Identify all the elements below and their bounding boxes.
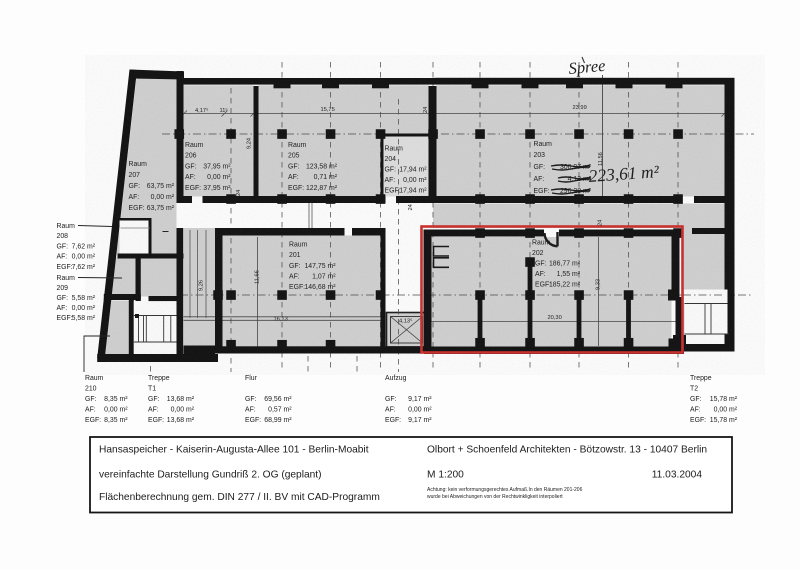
svg-text:Raum: Raum [57, 275, 76, 282]
svg-text:AF:: AF: [85, 407, 96, 414]
svg-text:EGF:: EGF: [85, 417, 101, 424]
svg-text:0,00 m²: 0,00 m² [104, 407, 128, 414]
svg-text:Achtung: kein verformungsgerec: Achtung: kein verformungsgerechtes Aufma… [427, 487, 583, 493]
svg-text:GF:: GF: [57, 244, 69, 251]
svg-text:Hansaspeicher - Kaiserin-Augus: Hansaspeicher - Kaiserin-Augusta-Allee 1… [99, 445, 369, 456]
svg-text:13,68 m²: 13,68 m² [167, 417, 195, 424]
svg-text:9,17 m²: 9,17 m² [408, 396, 432, 403]
svg-text:68,99 m²: 68,99 m² [264, 417, 292, 424]
svg-text:AF:: AF: [57, 254, 68, 261]
svg-text:0,00 m²: 0,00 m² [714, 407, 738, 414]
svg-text:11.03.2004: 11.03.2004 [652, 470, 703, 481]
svg-text:Treppe: Treppe [690, 375, 712, 382]
svg-text:vereinfachte Darstellung Gundr: vereinfachte Darstellung Gundriß 2. OG (… [99, 470, 322, 481]
svg-text:0,00 m²: 0,00 m² [408, 407, 432, 414]
svg-text:Raum: Raum [85, 375, 104, 382]
svg-text:AF:: AF: [690, 407, 701, 414]
svg-text:210: 210 [85, 386, 97, 393]
svg-text:0,00 m²: 0,00 m² [171, 407, 195, 414]
svg-text:8,35 m²: 8,35 m² [104, 417, 128, 424]
svg-text:69,56 m²: 69,56 m² [264, 396, 292, 403]
svg-text:AF:: AF: [385, 407, 396, 414]
svg-text:EGF:: EGF: [57, 264, 73, 271]
svg-text:GF:: GF: [57, 295, 69, 302]
svg-text:GF:: GF: [148, 396, 160, 403]
svg-text:0,57 m²: 0,57 m² [268, 407, 292, 414]
svg-text:Raum: Raum [57, 223, 76, 230]
svg-text:9,17 m²: 9,17 m² [408, 417, 432, 424]
svg-text:EGF:: EGF: [385, 417, 401, 424]
svg-text:Aufzug: Aufzug [385, 375, 407, 382]
svg-text:EGF:: EGF: [690, 417, 706, 424]
svg-text:Flächenberechnung gem. DIN 277: Flächenberechnung gem. DIN 277 / II. BV … [99, 492, 380, 503]
svg-text:EGF:: EGF: [148, 417, 164, 424]
svg-text:EGF:: EGF: [245, 417, 261, 424]
svg-text:wurde bei Abweichungen von der: wurde bei Abweichungen von der Rechtwink… [427, 494, 563, 500]
svg-text:M 1:200: M 1:200 [427, 470, 464, 481]
svg-text:GF:: GF: [690, 396, 702, 403]
svg-text:AF:: AF: [148, 407, 159, 414]
svg-text:8,35 m²: 8,35 m² [104, 396, 128, 403]
svg-text:15,78 m²: 15,78 m² [710, 417, 738, 424]
svg-text:EGF:: EGF: [57, 315, 73, 322]
svg-text:AF:: AF: [245, 407, 256, 414]
svg-text:AF:: AF: [57, 305, 68, 312]
svg-text:GF:: GF: [245, 396, 257, 403]
svg-text:208: 208 [57, 233, 69, 240]
svg-text:13,68 m²: 13,68 m² [167, 396, 195, 403]
svg-text:Treppe: Treppe [148, 375, 170, 382]
svg-text:GF:: GF: [85, 396, 97, 403]
svg-text:209: 209 [57, 285, 69, 292]
svg-text:Flur: Flur [245, 375, 258, 382]
svg-text:Olbort + Schoenfeld Architekte: Olbort + Schoenfeld Architekten - Bötzow… [427, 445, 707, 456]
svg-text:GF:: GF: [385, 396, 397, 403]
svg-text:T2: T2 [690, 386, 698, 393]
svg-text:T1: T1 [148, 386, 156, 393]
svg-text:15,78 m²: 15,78 m² [710, 396, 738, 403]
